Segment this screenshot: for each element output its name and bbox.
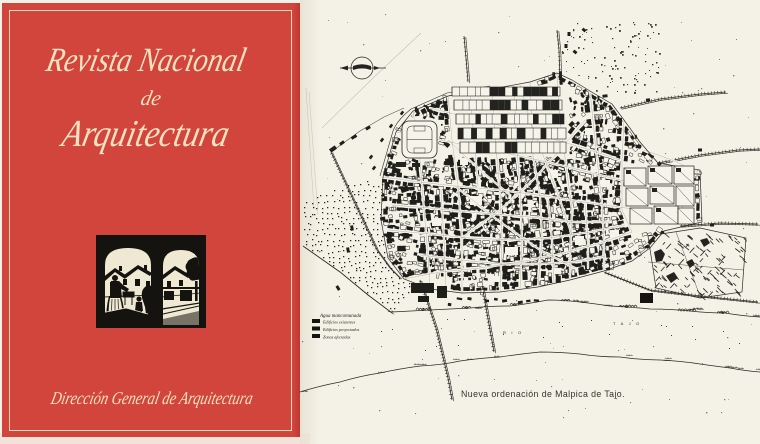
svg-text:T A J O: T A J O [613,321,641,326]
svg-text:Edificios proyectados: Edificios proyectados [322,327,360,332]
svg-text:Edificios existentes: Edificios existentes [322,320,356,325]
svg-text:Zonas afectadas: Zonas afectadas [323,335,351,340]
svg-text:Agua mancomunada: Agua mancomunada [319,314,362,319]
svg-text:R I O: R I O [503,330,523,335]
svg-text:Nueva ordenación de Malpica de: Nueva ordenación de Malpica de Tajo. [461,389,625,399]
